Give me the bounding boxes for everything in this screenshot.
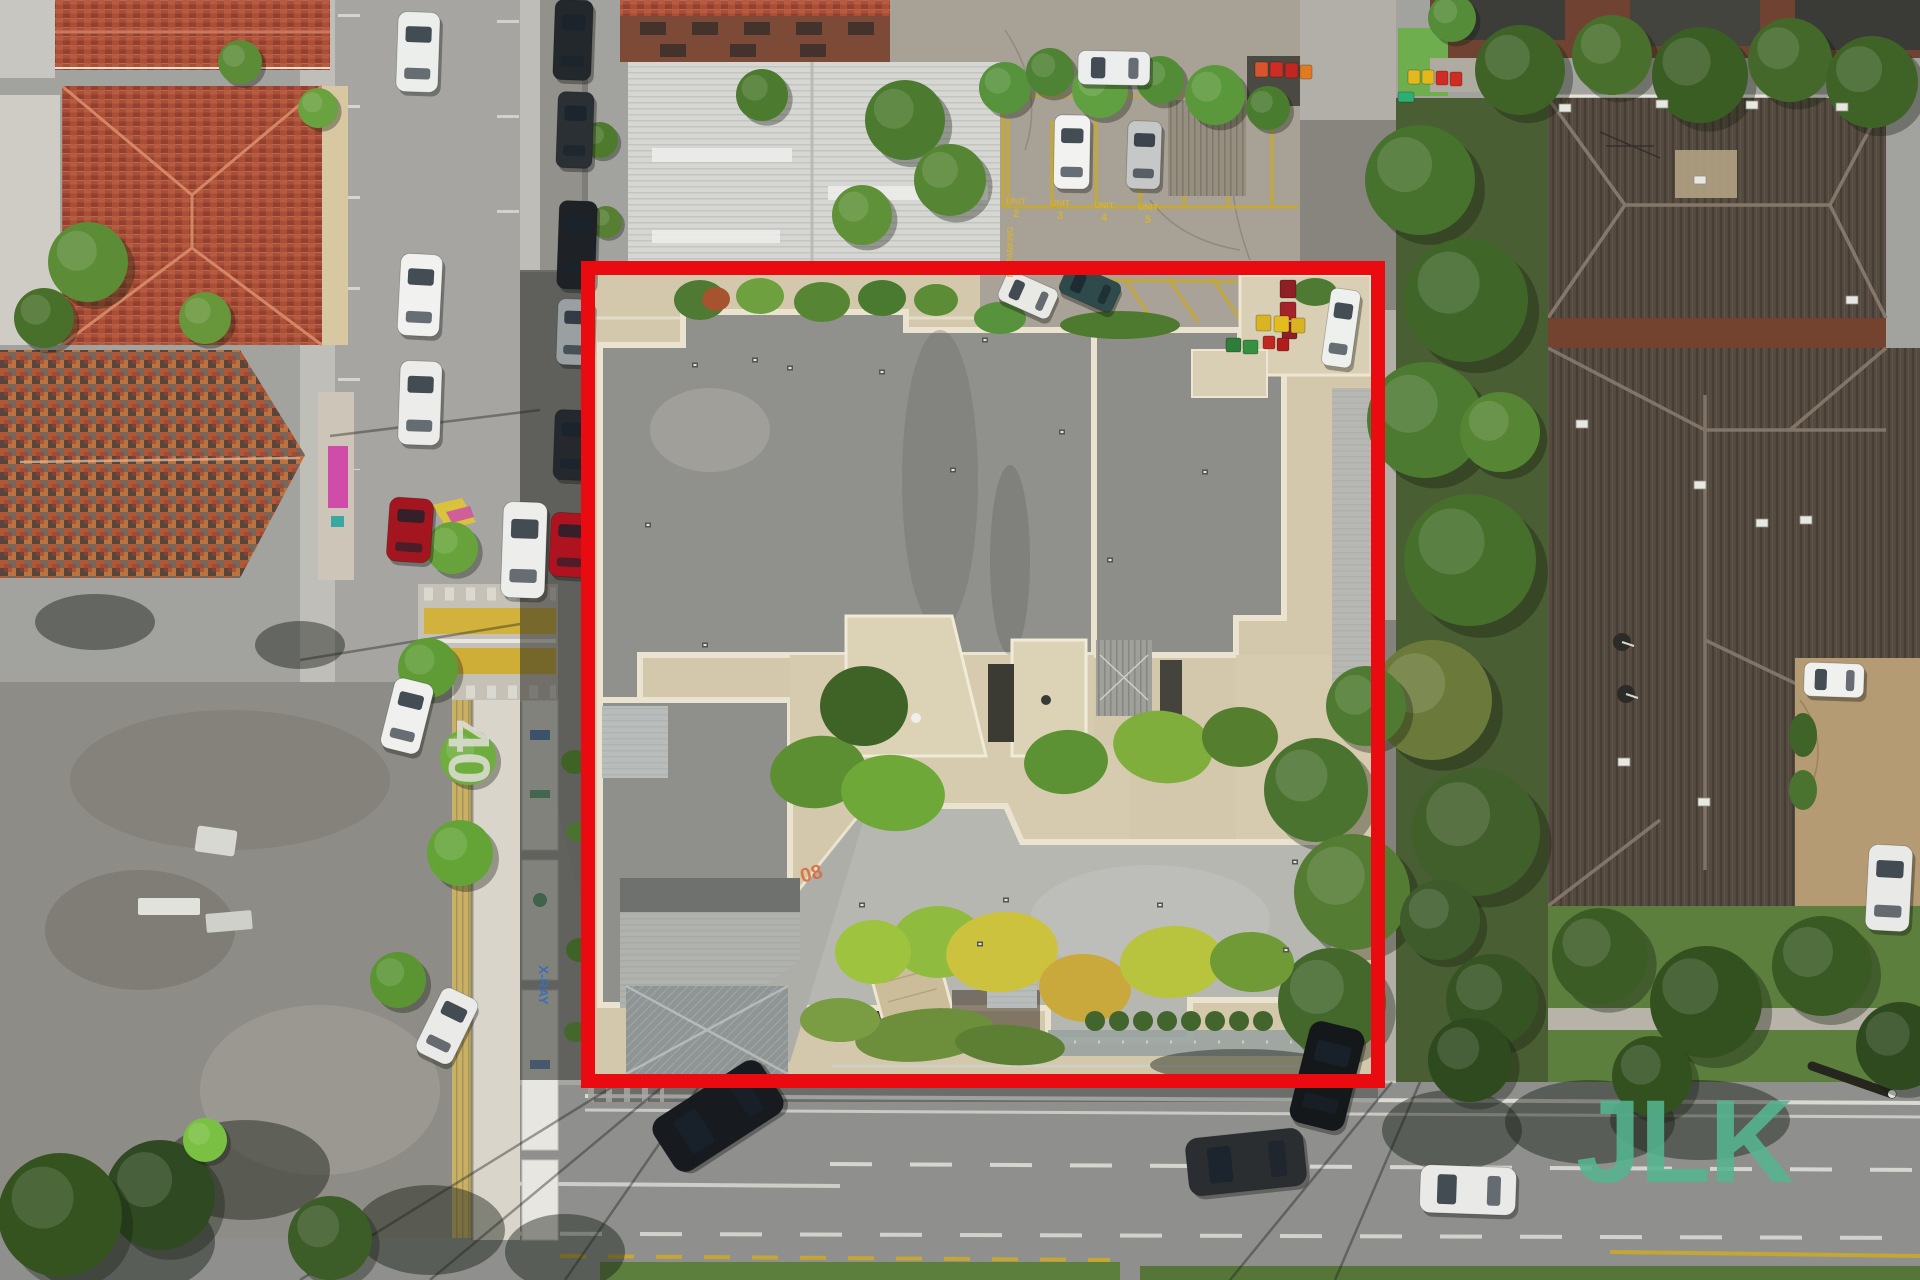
west-metal-roof-ribs xyxy=(602,706,668,778)
watermark-jlk: JLK xyxy=(1576,1076,1794,1208)
tree-shadow xyxy=(35,594,155,650)
roof-vent-cap xyxy=(979,943,982,945)
roof-vent-cap xyxy=(881,371,884,373)
car-rear-glass xyxy=(560,56,584,68)
corrugated-dark-panel xyxy=(620,878,800,912)
bin xyxy=(1226,338,1241,352)
bin xyxy=(1243,340,1258,354)
car xyxy=(397,360,445,450)
roof-vent-cap xyxy=(789,367,792,369)
unit-bay-label: UNIT xyxy=(1094,200,1115,210)
tree-highlight xyxy=(1581,24,1621,64)
bin xyxy=(1255,62,1268,77)
tree-highlight xyxy=(1307,847,1365,905)
car-windshield xyxy=(1091,57,1106,78)
unit-bay-number: 3 xyxy=(1057,210,1063,222)
car-body xyxy=(1078,50,1151,85)
brick-apartments-tile-edge xyxy=(620,0,890,16)
car xyxy=(500,501,550,603)
tree-highlight xyxy=(1409,889,1449,929)
tree-highlight xyxy=(1662,958,1718,1014)
bin xyxy=(1256,315,1271,331)
bin xyxy=(1408,70,1420,84)
car xyxy=(397,253,446,341)
tree-highlight xyxy=(1192,72,1222,102)
tree-shadow xyxy=(355,1185,505,1275)
car-rear-glass xyxy=(1874,904,1902,917)
bin xyxy=(1398,92,1414,102)
roof-vent-cap xyxy=(1285,949,1288,951)
car xyxy=(556,91,598,172)
tree-highlight xyxy=(185,298,211,324)
hedge-ball xyxy=(1205,1011,1225,1031)
car-windshield xyxy=(1207,1146,1234,1184)
ac-unit xyxy=(1746,101,1758,109)
tree-highlight xyxy=(21,295,51,325)
roof-vent-cap xyxy=(704,644,707,646)
hedge xyxy=(736,278,784,314)
tree-highlight xyxy=(839,192,869,222)
tree-highlight xyxy=(1290,960,1344,1014)
xray-sign-text: X-RAY xyxy=(536,965,551,1005)
unit-bay-number: 4 xyxy=(1101,212,1108,224)
tree-highlight xyxy=(922,152,958,188)
car-rear-glass xyxy=(395,542,423,553)
tree-highlight xyxy=(1251,91,1273,113)
roof-vent-cap xyxy=(647,524,650,526)
bin xyxy=(1300,65,1312,79)
unit-bay-number: 2 xyxy=(1013,208,1019,220)
tree-highlight xyxy=(1836,46,1882,92)
car-body xyxy=(1419,1164,1517,1215)
tree-highlight xyxy=(1437,1027,1479,1069)
repaired-tile-patch xyxy=(1675,150,1737,198)
roof-vent-cap xyxy=(1109,559,1112,561)
car-rear-glass xyxy=(404,68,430,80)
tree-highlight xyxy=(1380,375,1438,433)
car-body xyxy=(1053,115,1090,190)
car xyxy=(1865,844,1917,936)
car xyxy=(1053,115,1093,194)
car-rear-glass xyxy=(560,459,583,470)
bin xyxy=(1422,70,1434,84)
bin xyxy=(1280,280,1296,298)
roof-unit-3 xyxy=(205,910,252,933)
tree-highlight xyxy=(405,645,435,675)
hedge xyxy=(820,666,908,746)
unit-bay-label: UNIT xyxy=(1050,198,1071,208)
car-rear-glass xyxy=(563,145,586,156)
bin xyxy=(1291,318,1305,333)
grass-strip-bottom-right xyxy=(1140,1266,1920,1280)
tree-highlight xyxy=(1456,964,1502,1010)
ac-unit xyxy=(1576,420,1588,428)
bin xyxy=(1450,72,1462,86)
car xyxy=(1126,120,1165,193)
unit-bay-label: UNIT xyxy=(1006,196,1027,206)
concrete-gap xyxy=(890,0,1000,62)
car-windshield xyxy=(511,519,539,539)
car xyxy=(395,11,443,97)
tree-highlight xyxy=(1485,35,1530,80)
tree-highlight xyxy=(12,1167,74,1229)
tree-highlight xyxy=(432,528,458,554)
car-windshield xyxy=(561,422,584,437)
roof-unit-2 xyxy=(138,898,200,915)
car-body xyxy=(1184,1127,1307,1197)
tree-highlight xyxy=(1419,509,1485,575)
car xyxy=(1078,50,1154,89)
pink-shop-sign xyxy=(328,446,348,508)
hedge xyxy=(1789,713,1817,757)
hedge xyxy=(914,284,958,316)
car-windshield xyxy=(564,105,587,121)
hedge-ball xyxy=(1109,1011,1129,1031)
roof-vent-cap xyxy=(1159,904,1162,906)
car-rear-glass xyxy=(1060,167,1082,178)
left-corner-roof xyxy=(0,0,55,78)
unit-bay-number: 5 xyxy=(1145,214,1151,226)
tree-highlight xyxy=(376,958,404,986)
ac-unit xyxy=(1800,516,1812,524)
grass-strip-bottom xyxy=(600,1262,1120,1280)
tree-highlight xyxy=(1426,782,1490,846)
car-body xyxy=(386,497,434,564)
hedge xyxy=(858,280,906,316)
terracotta-roof-north xyxy=(55,0,330,70)
teal-shop-sign xyxy=(331,516,344,527)
roof-vent-cap xyxy=(754,359,757,361)
hip-house xyxy=(626,986,788,1074)
tree-highlight xyxy=(1866,1012,1910,1056)
car-rear-glass xyxy=(406,311,433,324)
car-windshield xyxy=(1437,1174,1457,1204)
tree-highlight xyxy=(1757,27,1799,69)
tree-highlight xyxy=(302,92,322,112)
roof-vent-cap xyxy=(1061,431,1064,433)
roof-vent-cap xyxy=(1204,471,1207,473)
ac-unit xyxy=(1756,519,1768,527)
ac-unit xyxy=(1694,481,1706,489)
ne-terrace-2 xyxy=(1192,350,1267,397)
hedge-ball xyxy=(1085,1011,1105,1031)
car-windshield xyxy=(1814,669,1827,690)
car xyxy=(1184,1127,1311,1201)
tree-highlight xyxy=(1418,252,1480,314)
car-windshield xyxy=(1061,128,1084,143)
tree-highlight xyxy=(1433,0,1457,23)
hedge-ball xyxy=(1229,1011,1249,1031)
car xyxy=(1803,662,1867,702)
bin xyxy=(1277,338,1289,351)
hedge-ball xyxy=(1157,1011,1177,1031)
roof-unit-1 xyxy=(194,825,237,856)
tree-highlight xyxy=(434,827,467,860)
car-rear-glass xyxy=(556,557,581,567)
ac-unit xyxy=(1836,103,1848,111)
hedge xyxy=(1202,707,1278,767)
car-body xyxy=(553,0,594,81)
bin xyxy=(1270,62,1283,77)
tree-highlight xyxy=(1377,137,1432,192)
hedge xyxy=(1060,311,1180,339)
ac-unit xyxy=(1559,104,1571,112)
tree-highlight xyxy=(1031,53,1055,77)
balcony-furniture-dark xyxy=(1041,695,1051,705)
roof-vent-cap xyxy=(984,339,987,341)
tree-highlight xyxy=(985,68,1011,94)
car-windshield xyxy=(1876,860,1904,879)
car-windshield xyxy=(408,268,435,286)
speed-limit-marking: 40 xyxy=(436,720,501,785)
tree-highlight xyxy=(742,75,768,101)
brick-wall-strip xyxy=(1548,318,1886,348)
bin xyxy=(1285,63,1298,78)
car-body xyxy=(500,501,547,598)
bin xyxy=(1263,336,1275,349)
hedge xyxy=(702,287,730,311)
roof-stain-1 xyxy=(70,710,390,850)
hedge-ball xyxy=(1133,1011,1153,1031)
hedge xyxy=(800,998,880,1042)
tree-highlight xyxy=(188,1123,210,1145)
hedge xyxy=(794,282,850,322)
roof-light-patch xyxy=(650,388,770,472)
tree-highlight xyxy=(1275,749,1327,801)
brown-roof-north xyxy=(1548,98,1886,318)
car-body xyxy=(397,253,443,337)
roof-vent-cap xyxy=(1294,861,1297,863)
car-rear-glass xyxy=(1487,1176,1501,1206)
car-windshield xyxy=(558,524,583,538)
tree-highlight xyxy=(1469,401,1509,441)
roof-vent-cap xyxy=(861,904,864,906)
ac-unit xyxy=(1846,296,1858,304)
tree-highlight xyxy=(1663,38,1711,86)
car-windshield xyxy=(407,376,434,394)
car-body xyxy=(398,360,443,445)
car xyxy=(552,0,596,85)
car-body xyxy=(1126,120,1162,189)
ac-unit xyxy=(1698,798,1710,806)
tree-highlight xyxy=(1335,675,1375,715)
roof-vent-cap xyxy=(1005,899,1008,901)
car-windshield xyxy=(1333,302,1354,320)
car-windshield xyxy=(1134,133,1156,147)
ac-unit xyxy=(1694,176,1706,184)
car-windshield xyxy=(405,26,432,43)
roof-vent-cap xyxy=(952,469,955,471)
roof-streak-2 xyxy=(990,465,1030,655)
tree-shadow xyxy=(255,621,345,669)
balcony-furniture-white xyxy=(911,713,921,723)
tree-highlight xyxy=(57,231,97,271)
car-rear-glass xyxy=(1846,670,1855,691)
ac-unit xyxy=(1618,758,1630,766)
car-body xyxy=(396,11,441,92)
stair-void-1 xyxy=(988,664,1014,742)
car-body xyxy=(1865,844,1913,932)
tree-highlight xyxy=(223,45,245,67)
car-rear-glass xyxy=(406,419,432,432)
tree-highlight xyxy=(1563,919,1611,967)
roof-stain-2 xyxy=(45,870,235,990)
tree-highlight xyxy=(874,89,914,129)
car-rear-glass xyxy=(1133,168,1154,178)
aerial-scene: 40 NO PARKING X-RAY 08 UNIT2UNIT3UNIT4UN… xyxy=(0,0,1920,1280)
hedge xyxy=(1789,770,1817,810)
car-windshield xyxy=(397,509,425,524)
hedge xyxy=(835,920,911,984)
unit-bay-label: UNIT xyxy=(1138,202,1159,212)
tree-highlight xyxy=(1783,927,1833,977)
car-rear-glass xyxy=(509,569,537,583)
car-body xyxy=(556,91,595,168)
car-windshield xyxy=(566,216,590,234)
car-body xyxy=(1803,662,1864,698)
car-windshield xyxy=(562,14,586,31)
car-rear-glass xyxy=(1128,58,1138,79)
bin xyxy=(1274,316,1289,332)
bin xyxy=(1436,71,1448,85)
hedge-ball xyxy=(1253,1011,1273,1031)
hedge-ball xyxy=(1181,1011,1201,1031)
tree-highlight xyxy=(297,1205,339,1247)
roof-streak-1 xyxy=(902,330,978,630)
aerial-photo: 40 NO PARKING X-RAY 08 UNIT2UNIT3UNIT4UN… xyxy=(0,0,1920,1280)
car xyxy=(1419,1164,1520,1219)
ac-unit xyxy=(1656,100,1668,108)
car xyxy=(386,497,438,568)
roof-vent-cap xyxy=(694,364,697,366)
